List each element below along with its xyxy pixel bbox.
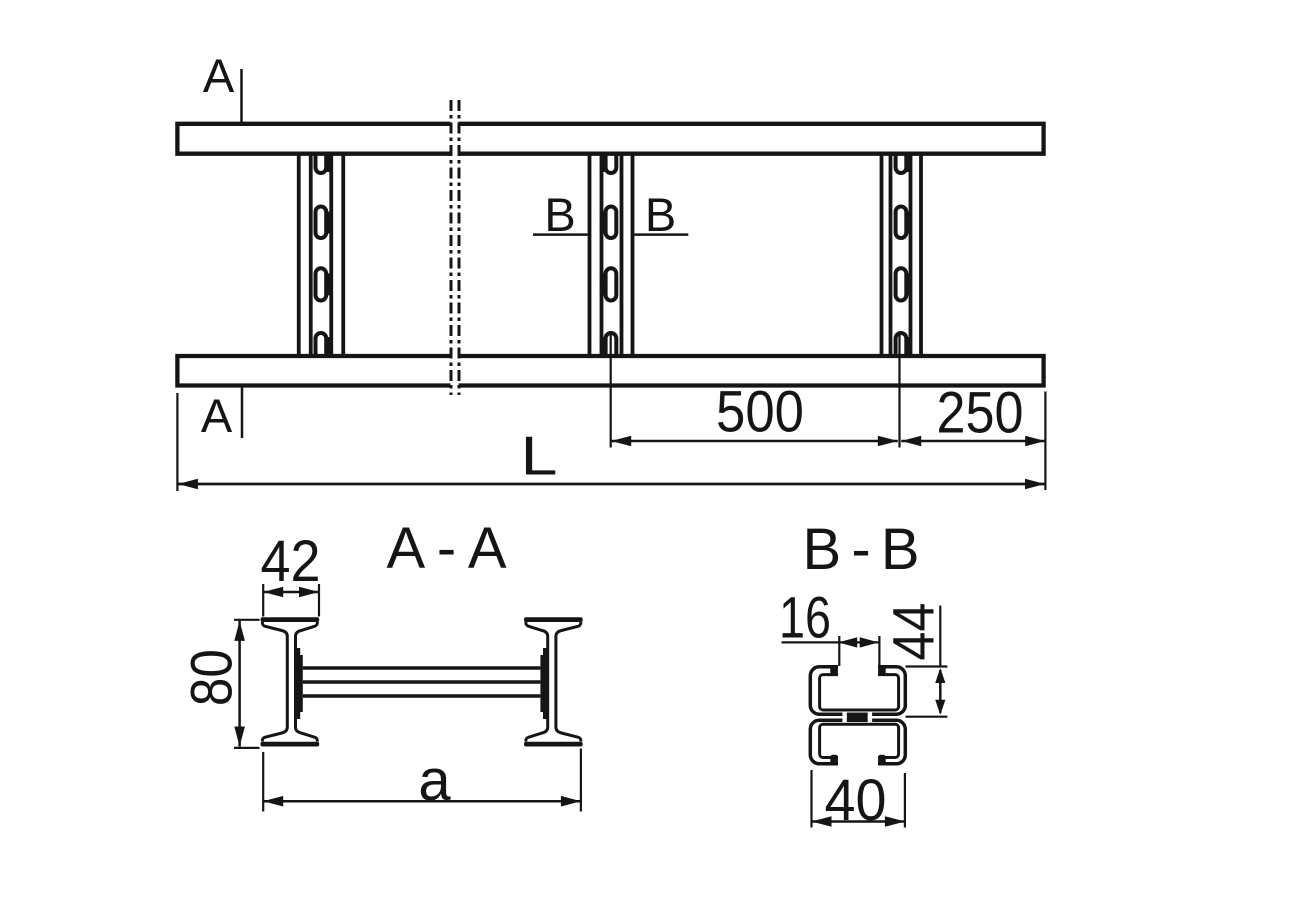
svg-text:B - B: B - B [803,517,920,582]
svg-text:16: 16 [779,586,831,651]
svg-text:B: B [544,188,575,241]
svg-text:80: 80 [180,649,245,706]
svg-text:40: 40 [825,768,887,833]
svg-text:A - A: A - A [387,516,507,581]
svg-text:L: L [521,425,558,487]
svg-text:a: a [418,748,451,813]
svg-text:42: 42 [261,529,321,594]
svg-text:500: 500 [716,380,804,445]
svg-text:A: A [201,389,233,442]
svg-text:44: 44 [882,603,947,661]
svg-text:250: 250 [937,380,1024,445]
svg-text:B: B [645,188,676,241]
svg-text:A: A [203,49,235,102]
